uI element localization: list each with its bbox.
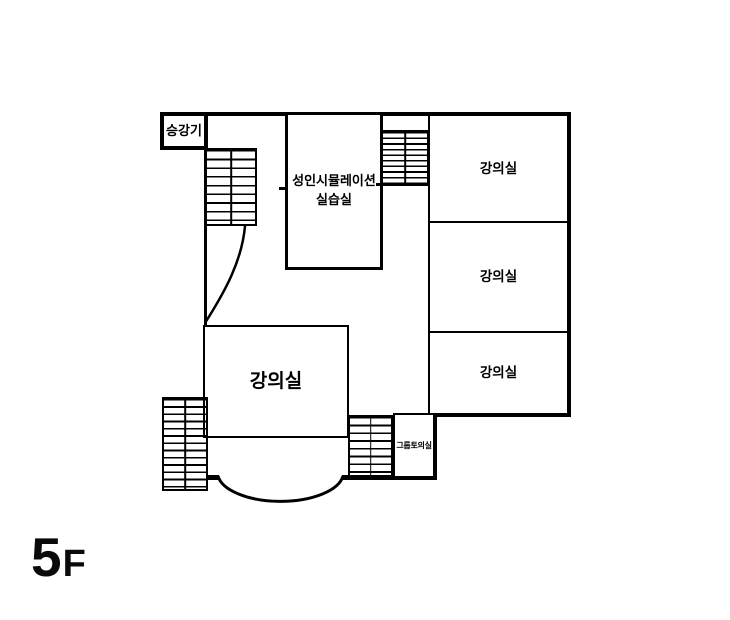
stairs-bottom-right: [348, 415, 393, 477]
simulation-room: 성인시뮬레이션 실습실: [285, 112, 383, 270]
group-discussion-room-label: 그룹토의실: [396, 440, 431, 452]
lecture-room-right-top-label: 강의실: [480, 159, 517, 179]
stairs-top-left: [205, 148, 257, 226]
stairs-divider: [404, 132, 406, 184]
curved-entrance-wall: [210, 472, 350, 512]
floor-number: 5: [31, 530, 63, 585]
simulation-room-label: 성인시뮬레이션 실습실: [292, 172, 376, 210]
label-tick-left: [279, 187, 287, 190]
elevator-room: 승강기: [160, 112, 208, 150]
stairs-divider: [184, 399, 186, 489]
lecture-room-right-middle-label: 강의실: [480, 267, 517, 287]
simulation-room-label-line2: 실습실: [292, 191, 376, 210]
stairs-bottom-left: [162, 397, 208, 491]
stairs-divider: [370, 417, 372, 475]
floor-plan-canvas: 승강기 성인시뮬레이션 실습실 강의실 강의실 강의실 강의실 그룹토의실: [0, 0, 730, 620]
lecture-room-right-bottom-label: 강의실: [480, 363, 517, 383]
wall-bottom-right: [433, 413, 571, 417]
lecture-room-right-top: 강의실: [430, 116, 567, 221]
lecture-room-main-label: 강의실: [250, 368, 302, 396]
elevator-label: 승강기: [166, 122, 202, 141]
wall-right: [567, 112, 571, 417]
lecture-room-right-middle: 강의실: [430, 223, 567, 331]
floor-suffix: F: [63, 545, 86, 583]
stairs-divider: [230, 150, 232, 224]
group-discussion-room: 그룹토의실: [393, 413, 437, 480]
lecture-room-right-bottom: 강의실: [430, 333, 567, 412]
simulation-room-label-line1: 성인시뮬레이션: [292, 172, 376, 191]
lecture-room-main: 강의실: [203, 325, 349, 438]
stairs-top-right: [381, 130, 429, 186]
curved-corridor-line: [198, 222, 252, 328]
floor-label: 5F: [31, 530, 86, 585]
